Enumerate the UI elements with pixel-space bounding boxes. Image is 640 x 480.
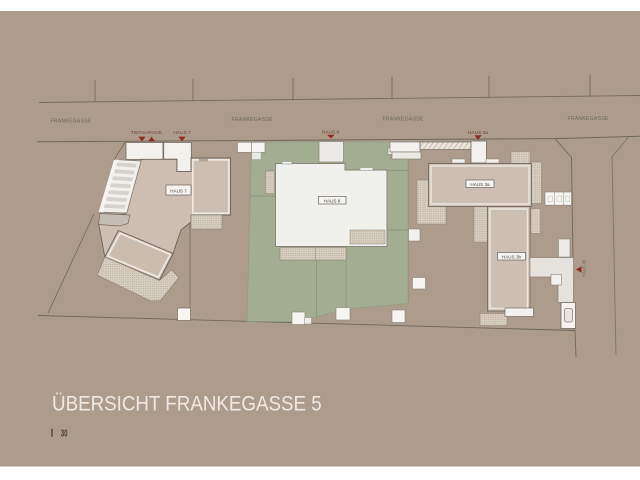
svg-text:ÜBERSICHT FRANKEGASSE 5: ÜBERSICHT FRANKEGASSE 5 [52, 393, 322, 416]
svg-text:TIEFGARAGE: TIEFGARAGE [131, 130, 162, 136]
svg-text:FRANKEGASSE: FRANKEGASSE [231, 117, 272, 123]
svg-text:HAUS 8: HAUS 8 [324, 198, 341, 203]
svg-text:HAUS 7: HAUS 7 [173, 130, 191, 136]
svg-text:HAUS 3b: HAUS 3b [502, 254, 522, 259]
svg-text:30: 30 [61, 428, 68, 439]
svg-text:FRANKEGASSE: FRANKEGASSE [382, 117, 423, 123]
svg-text:FRANKEGASSE: FRANKEGASSE [567, 116, 608, 122]
svg-text:HAUS 3a: HAUS 3a [470, 182, 490, 187]
svg-text:HAUS 8: HAUS 8 [322, 130, 340, 136]
svg-text:HAUS 7: HAUS 7 [170, 188, 187, 193]
svg-text:HAUS 3b: HAUS 3b [582, 259, 587, 277]
svg-text:FRANKEGASSE: FRANKEGASSE [50, 119, 91, 125]
svg-text:HAUS 3a: HAUS 3a [468, 130, 488, 136]
